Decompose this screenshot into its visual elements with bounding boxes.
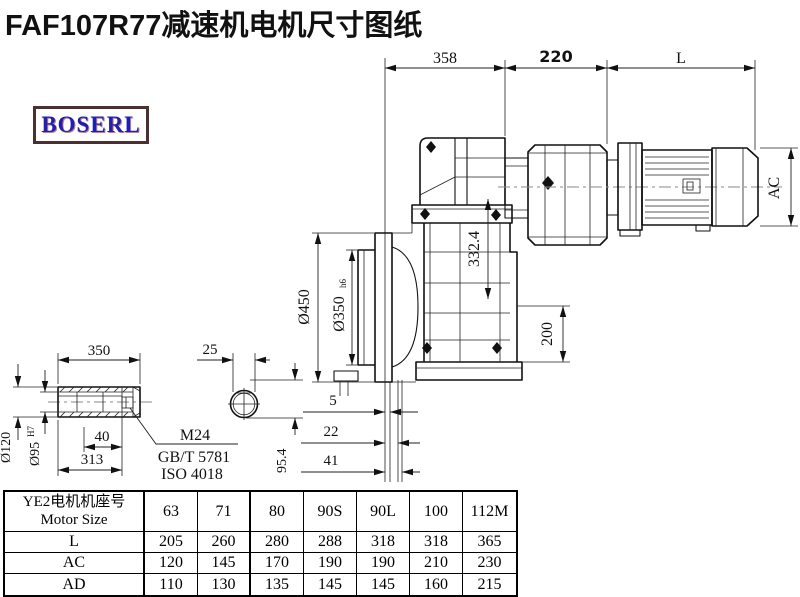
- dim-key-width: 25: [203, 342, 218, 358]
- table-cell: 318: [410, 532, 463, 553]
- hollow-shaft-detail: [48, 387, 152, 417]
- motor-fins: [645, 200, 709, 218]
- dim-bore-diameter: Ø95: [28, 442, 43, 466]
- bolt-diamond-icon: [491, 209, 501, 221]
- bolt-diamond-icon: [420, 208, 430, 220]
- table-cell: 215: [463, 574, 516, 595]
- table-cell: 280: [251, 532, 304, 553]
- col-header: 90L: [357, 492, 410, 532]
- dim-center-height: 332.4: [466, 231, 483, 267]
- table-cell: 318: [357, 532, 410, 553]
- row-label: AC: [5, 553, 145, 574]
- bolt-diamond-icon: [492, 342, 502, 354]
- dim-offset-1: 5: [329, 393, 337, 409]
- col-header: 112M: [463, 492, 516, 532]
- dim-offset-2: 22: [324, 424, 339, 440]
- standard-gbt: GB/T 5781: [158, 449, 230, 466]
- table-header-en: Motor Size: [40, 512, 107, 529]
- dim-shaft-length: 350: [88, 343, 111, 359]
- output-face-lines: [385, 380, 402, 482]
- col-header: 63: [145, 492, 198, 532]
- dim-gearbox-length: 358: [433, 50, 457, 67]
- dim-keyway-height: 95.4: [275, 449, 290, 474]
- dim-thread-depth: 40: [95, 429, 110, 445]
- table-cell: 145: [198, 553, 251, 574]
- dim-spigot-fit: h6: [338, 279, 348, 289]
- motor-dimension-ac: AC: [760, 148, 798, 226]
- dim-offset-3: 41: [324, 453, 339, 469]
- table-cell: 230: [463, 553, 516, 574]
- table-cell: 210: [410, 553, 463, 574]
- table-cell: 205: [145, 532, 198, 553]
- row-label: L: [5, 532, 145, 553]
- table-cell: 190: [304, 553, 357, 574]
- bolt-diamond-icon: [542, 176, 554, 190]
- col-header: 71: [198, 492, 251, 532]
- col-header: 90S: [304, 492, 357, 532]
- dim-adapter-length: 220: [539, 47, 572, 66]
- shaft-dimensions: 350 Ø120 Ø95 H7 40 313 M24 GB/T 5781 ISO…: [0, 343, 238, 483]
- table-cell: 145: [357, 574, 410, 595]
- motor-adapter: [505, 145, 618, 245]
- table-cell: 160: [410, 574, 463, 595]
- dim-spigot-diameter: Ø350: [331, 296, 348, 332]
- table-cell: 110: [145, 574, 198, 595]
- table-cell: 135: [251, 574, 304, 595]
- table-header-cn: YE2电机机座号: [23, 494, 126, 511]
- dim-shaft-outer-diameter: Ø120: [0, 432, 14, 463]
- dim-bore-length: 313: [81, 452, 104, 468]
- col-header: 80: [251, 492, 304, 532]
- table-cell: 190: [357, 553, 410, 574]
- motor-foot: [620, 230, 640, 236]
- motor-foot: [696, 225, 710, 231]
- table-header-label: YE2电机机座号 Motor Size: [5, 492, 145, 532]
- table-cell: 260: [198, 532, 251, 553]
- table-cell: 170: [251, 553, 304, 574]
- bolt-diamond-icon: [426, 141, 436, 153]
- table-cell: 130: [198, 574, 251, 595]
- standard-iso: ISO 4018: [161, 466, 223, 483]
- dim-thread-spec: M24: [180, 427, 210, 444]
- dim-motor-diameter: AC: [766, 177, 783, 199]
- dim-bore-fit: H7: [26, 426, 36, 437]
- row-label: AD: [5, 574, 145, 595]
- dim-motor-length: L: [676, 50, 686, 67]
- motor-fins: [645, 157, 709, 175]
- dim-foot-height: 200: [539, 322, 556, 346]
- flange-dimensions: Ø450 Ø350 h6: [296, 233, 374, 382]
- motor: [498, 143, 782, 236]
- table-cell: 365: [463, 532, 516, 553]
- motor-size-table: YE2电机机座号 Motor Size 63 71 80 90S 90L 100…: [3, 490, 518, 597]
- dim-flange-diameter: Ø450: [296, 289, 313, 325]
- table-cell: 145: [304, 574, 357, 595]
- col-header: 100: [410, 492, 463, 532]
- table-cell: 288: [304, 532, 357, 553]
- table-cell: 120: [145, 553, 198, 574]
